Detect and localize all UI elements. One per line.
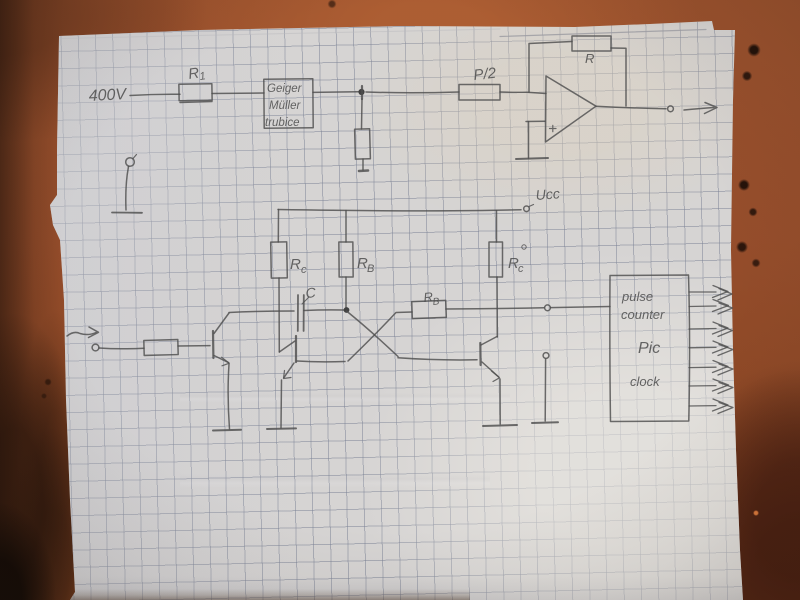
svg-text:1: 1 (199, 70, 207, 83)
svg-text:B: B (367, 263, 374, 275)
svg-text:B: B (432, 296, 440, 308)
svg-text:C: C (305, 284, 317, 301)
svg-text:counter: counter (621, 307, 665, 322)
svg-text:Geiger: Geiger (267, 83, 303, 95)
svg-text:c: c (518, 263, 524, 275)
svg-text:c: c (301, 264, 307, 276)
svg-text:Ucc: Ucc (535, 185, 560, 203)
svg-text:clock: clock (630, 374, 661, 389)
svg-text:P/2: P/2 (473, 65, 498, 84)
svg-text:R: R (290, 256, 301, 273)
svg-text:Pic: Pic (638, 340, 660, 357)
svg-text:pulse: pulse (621, 289, 653, 304)
svg-text:Müller: Müller (269, 100, 301, 112)
svg-text:trubice: trubice (265, 117, 300, 129)
svg-text:R: R (585, 51, 594, 66)
svg-text:400V: 400V (88, 86, 128, 105)
